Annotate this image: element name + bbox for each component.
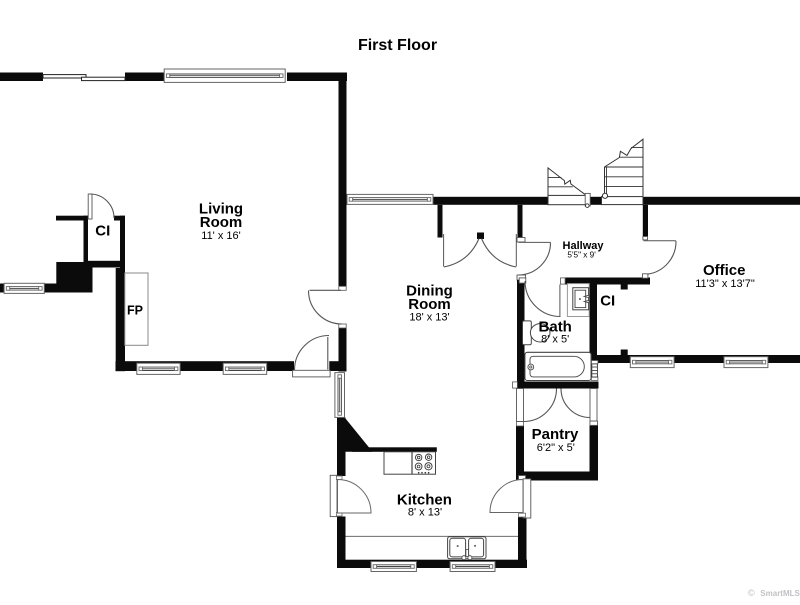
svg-text:SmartMLS: SmartMLS <box>760 589 800 598</box>
svg-text:11'3" x 13'7": 11'3" x 13'7" <box>695 278 755 290</box>
svg-text:First Floor: First Floor <box>358 37 437 54</box>
svg-text:18' x 13': 18' x 13' <box>409 312 449 324</box>
svg-text:Room: Room <box>200 214 243 231</box>
svg-text:CI: CI <box>600 293 615 310</box>
svg-text:11' x 16': 11' x 16' <box>201 230 240 242</box>
svg-text:6'2" x 5': 6'2" x 5' <box>537 442 575 454</box>
svg-text:CI: CI <box>95 223 110 240</box>
svg-text:Office: Office <box>703 262 746 279</box>
svg-text:Room: Room <box>408 296 451 313</box>
svg-text:5'5" x 9': 5'5" x 9' <box>567 251 596 260</box>
svg-text:Pantry: Pantry <box>532 426 579 443</box>
svg-text:8' x 13': 8' x 13' <box>408 506 442 518</box>
svg-text:8' x 5': 8' x 5' <box>541 334 569 346</box>
svg-text:©: © <box>748 588 755 599</box>
svg-text:FP: FP <box>127 304 143 318</box>
